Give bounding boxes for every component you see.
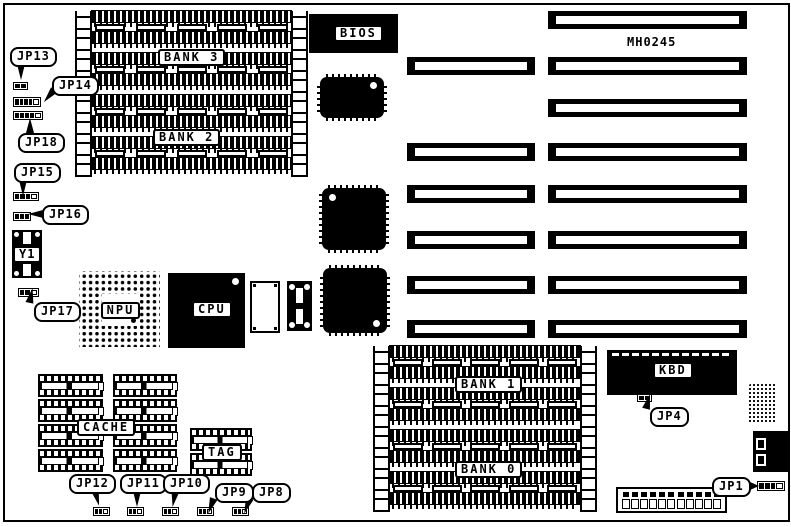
isa-slot-short-6 — [407, 320, 535, 338]
jp18-callout: JP18 — [18, 133, 65, 153]
isa-slot-long-4 — [548, 143, 747, 161]
simm-socket — [389, 408, 581, 429]
kbd-label: KBD — [653, 362, 693, 379]
jp4-callout: JP4 — [650, 407, 689, 427]
bank1-label: BANK 1 — [455, 376, 522, 393]
jp12-jumper — [93, 507, 110, 516]
simm-rail-right — [580, 346, 597, 512]
isa-slot-short-3 — [407, 185, 535, 203]
jp10-jumper — [162, 507, 179, 516]
empty-socket — [250, 281, 280, 333]
keyboard-din-connector — [753, 431, 788, 472]
cache-chip — [113, 374, 177, 397]
jp17-callout: JP17 — [34, 302, 81, 322]
qfp-chip-3 — [323, 268, 387, 333]
jp14-jumper — [13, 97, 41, 107]
npu-label: NPU — [101, 302, 141, 319]
jp15-callout: JP15 — [14, 163, 61, 183]
isa-slot-short-1 — [407, 57, 535, 75]
motherboard-layout-diagram: BANK 3 BANK 2 BANK 1 BANK 0 MH0245 BIOS — [0, 0, 791, 527]
isa-slot-long-3 — [548, 99, 747, 117]
cache-chip — [38, 449, 103, 472]
simm-socket — [91, 94, 292, 115]
bios-label: BIOS — [334, 25, 383, 42]
isa-slot-long-6 — [548, 231, 747, 249]
oscillator-socket — [287, 281, 312, 331]
simm-rail-right — [291, 11, 308, 177]
jp11-jumper — [127, 507, 144, 516]
cache-chip — [38, 374, 103, 397]
bank0-label: BANK 0 — [455, 461, 522, 478]
isa-slot-short-2 — [407, 143, 535, 161]
tag-label: TAG — [202, 444, 242, 461]
qfp-chip-1 — [320, 77, 384, 118]
jp1-jumper — [757, 481, 785, 491]
pin1-dot — [131, 318, 136, 323]
simm-socket — [91, 157, 292, 178]
y1-label: Y1 — [13, 246, 41, 263]
pin1-dot — [373, 320, 380, 327]
isa-slot-long-1 — [548, 11, 747, 29]
bank2-label: BANK 2 — [153, 129, 220, 146]
power-connector-pad — [748, 383, 777, 424]
isa-slot-long-7 — [548, 276, 747, 294]
jp13-callout: JP13 — [10, 47, 57, 67]
isa-slot-long-8 — [548, 320, 747, 338]
npu-socket: NPU — [79, 271, 160, 347]
simm-block-bottom — [373, 345, 597, 513]
simm-socket — [389, 492, 581, 513]
isa-slot-long-5 — [548, 185, 747, 203]
jp10-callout: JP10 — [163, 474, 210, 494]
isa-slot-short-4 — [407, 231, 535, 249]
cache-label: CACHE — [77, 419, 135, 436]
jp11-callout: JP11 — [120, 474, 167, 494]
jp14-callout: JP14 — [52, 76, 99, 96]
simm-socket — [389, 429, 581, 450]
jp16-callout: JP16 — [42, 205, 89, 225]
jp1-callout: JP1 — [712, 477, 751, 497]
qfp-chip-2 — [322, 188, 386, 250]
bank3-label: BANK 3 — [158, 49, 225, 66]
board-part-number: MH0245 — [627, 35, 676, 49]
isa-slot-long-2 — [548, 57, 747, 75]
simm-socket — [91, 10, 292, 31]
simm-socket — [389, 345, 581, 366]
simm-socket — [91, 73, 292, 94]
pin1-dot — [370, 82, 377, 89]
pin1-dot — [329, 194, 336, 201]
simm-block-top — [75, 10, 308, 178]
jp12-callout: JP12 — [69, 474, 116, 494]
jp9-callout: JP9 — [215, 483, 254, 503]
jp8-callout: JP8 — [252, 483, 291, 503]
isa-slot-short-5 — [407, 276, 535, 294]
pin-header-connector — [616, 487, 727, 513]
cache-chip — [113, 449, 177, 472]
simm-rail-left — [373, 346, 390, 512]
cpu-label: CPU — [192, 301, 232, 318]
pin1-dot — [232, 278, 239, 285]
jp13-jumper — [13, 82, 28, 90]
